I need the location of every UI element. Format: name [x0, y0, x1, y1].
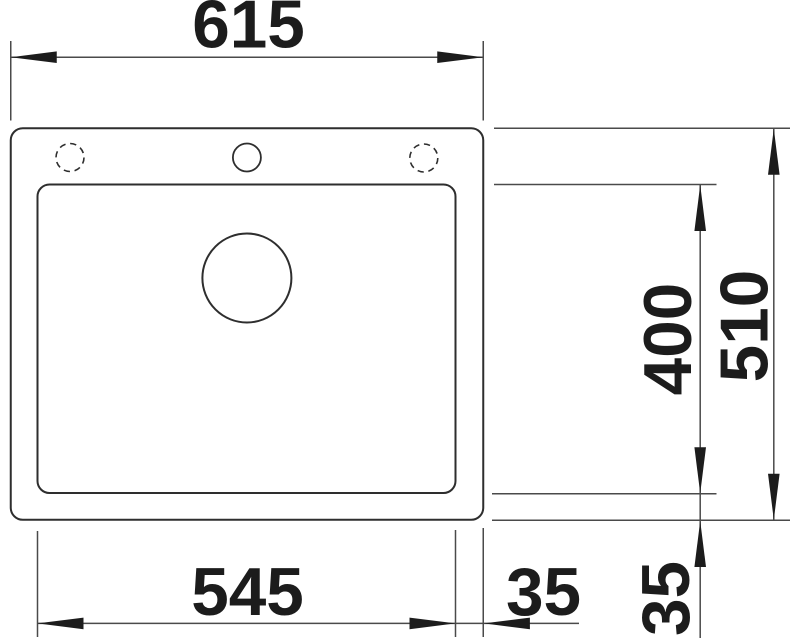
svg-text:615: 615: [192, 0, 305, 63]
svg-text:400: 400: [631, 283, 706, 396]
svg-text:510: 510: [708, 270, 783, 383]
svg-text:35: 35: [629, 561, 704, 636]
svg-text:545: 545: [191, 555, 304, 630]
svg-text:35: 35: [506, 555, 581, 630]
